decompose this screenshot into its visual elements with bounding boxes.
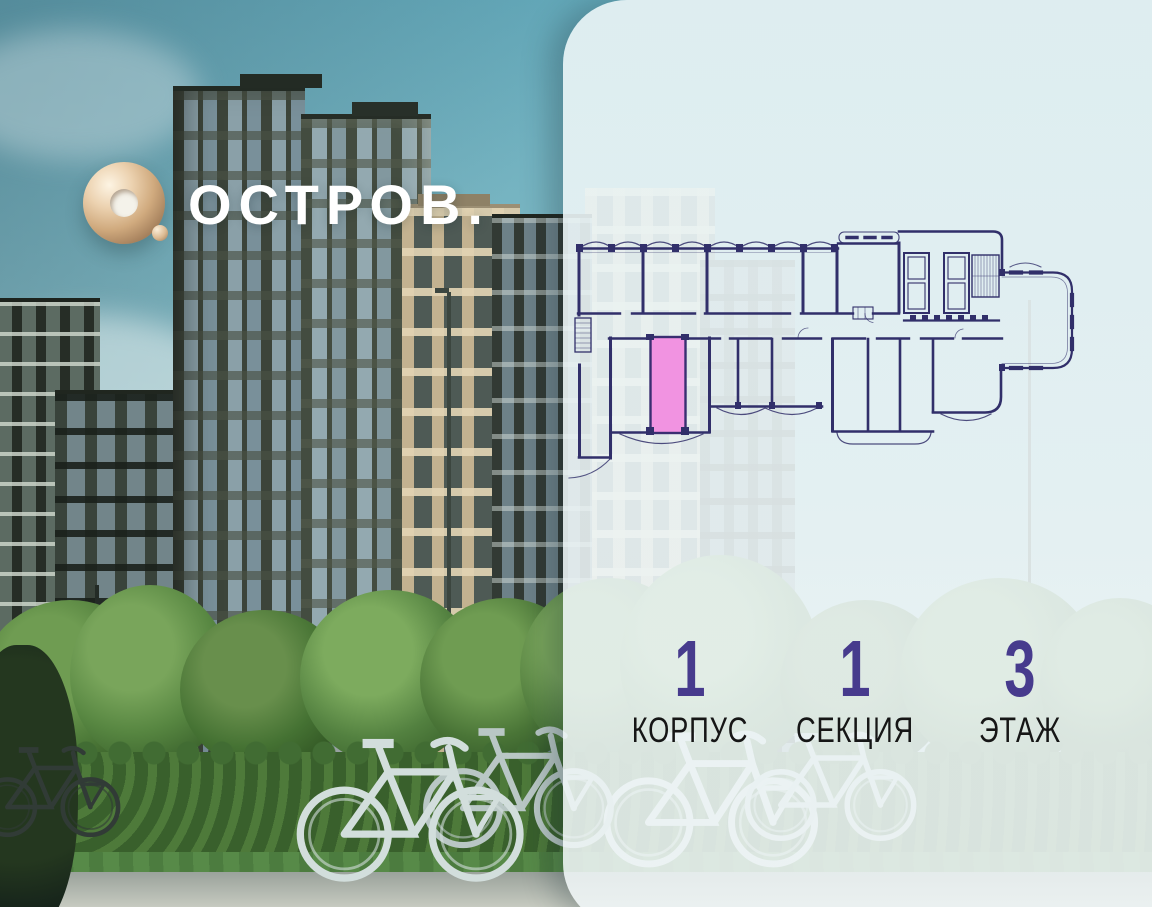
- floor-plan[interactable]: [565, 225, 1152, 480]
- stat-etazh[interactable]: 3 ЭТАЖ: [940, 633, 1100, 748]
- brand-name: ОСТРОВ.: [188, 172, 490, 237]
- logo-dot-icon: [152, 225, 168, 241]
- selection-stats: 1 КОРПУС 1 СЕКЦИЯ 3 ЭТАЖ: [610, 633, 1100, 748]
- stat-etazh-value: 3: [964, 633, 1076, 705]
- selected-unit[interactable]: [651, 337, 686, 433]
- bicycle-icon: [0, 735, 125, 840]
- stat-etazh-label: ЭТАЖ: [958, 714, 1083, 748]
- bicycle-icon: [293, 712, 531, 894]
- stat-sektsiya[interactable]: 1 СЕКЦИЯ: [775, 633, 935, 748]
- roof-parapet: [240, 74, 322, 88]
- roof-parapet: [352, 102, 418, 116]
- stat-sektsiya-label: СЕКЦИЯ: [793, 714, 918, 748]
- stat-sektsiya-value: 1: [799, 633, 911, 705]
- brand-logo[interactable]: ОСТРОВ.: [80, 158, 520, 258]
- page: ОСТРОВ.: [0, 0, 1152, 907]
- stat-korpus-label: КОРПУС: [628, 714, 753, 748]
- stat-korpus-value: 1: [634, 633, 746, 705]
- stat-korpus[interactable]: 1 КОРПУС: [610, 633, 770, 748]
